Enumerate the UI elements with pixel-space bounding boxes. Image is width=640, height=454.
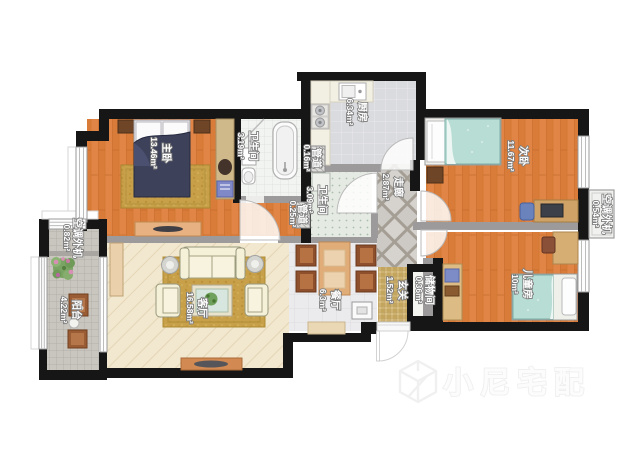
svg-text:小尼宅配: 小尼宅配 <box>443 366 591 400</box>
svg-text:0.16m²: 0.16m² <box>302 145 312 172</box>
svg-text:0.25m²: 0.25m² <box>288 201 298 228</box>
svg-text:阳台: 阳台 <box>70 300 83 320</box>
svg-text:客厅: 客厅 <box>196 297 209 318</box>
svg-text:主卧: 主卧 <box>160 143 173 163</box>
svg-text:0.54m²: 0.54m² <box>591 201 601 228</box>
svg-text:6.34m²: 6.34m² <box>345 99 355 126</box>
svg-text:儿童房: 儿童房 <box>521 268 534 299</box>
svg-text:13.46m²: 13.46m² <box>149 137 159 169</box>
svg-text:玄关: 玄关 <box>396 280 409 300</box>
svg-text:走廊: 走廊 <box>392 176 405 197</box>
svg-text:卫生间: 卫生间 <box>247 131 260 161</box>
svg-text:4.22m²: 4.22m² <box>59 297 69 324</box>
svg-text:11.67m²: 11.67m² <box>506 140 516 171</box>
svg-text:1.52m²: 1.52m² <box>385 277 395 304</box>
svg-text:2.87m²: 2.87m² <box>381 174 391 201</box>
svg-text:厨房: 厨房 <box>356 102 369 122</box>
svg-text:3.19m²: 3.19m² <box>236 133 246 160</box>
svg-text:6.3m²: 6.3m² <box>318 289 328 311</box>
svg-text:0.82m²: 0.82m² <box>62 225 72 252</box>
svg-text:10m²: 10m² <box>510 274 520 294</box>
svg-text:次卧: 次卧 <box>517 146 530 166</box>
svg-text:餐厅: 餐厅 <box>329 289 342 310</box>
svg-text:卫生间: 卫生间 <box>316 185 329 215</box>
svg-text:16.58m²: 16.58m² <box>185 292 195 324</box>
svg-text:0.36m²: 0.36m² <box>414 277 424 304</box>
